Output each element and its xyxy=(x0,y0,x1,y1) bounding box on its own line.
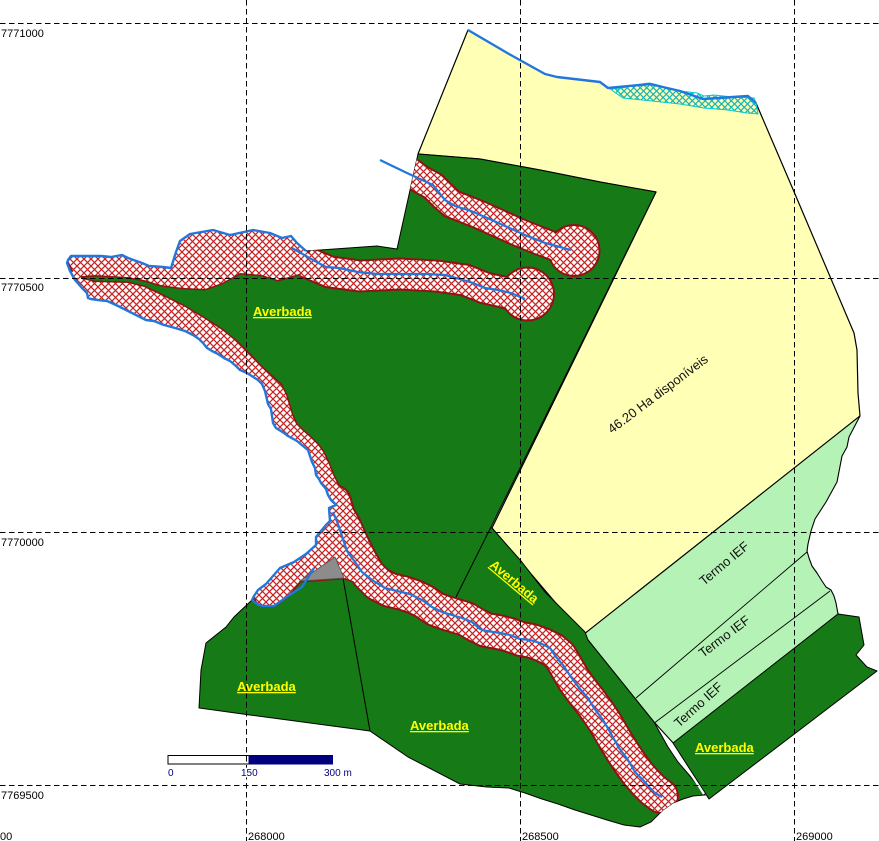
svg-text:00: 00 xyxy=(0,831,12,841)
svg-text:Averbada: Averbada xyxy=(253,304,313,319)
svg-text:269000: 269000 xyxy=(796,831,833,841)
svg-text:7769500: 7769500 xyxy=(1,790,44,802)
svg-text:Averbada: Averbada xyxy=(695,740,755,755)
svg-text:150: 150 xyxy=(241,768,258,779)
svg-text:0: 0 xyxy=(168,768,174,779)
svg-text:Averbada: Averbada xyxy=(410,718,470,733)
svg-text:7770500: 7770500 xyxy=(1,282,44,294)
svg-text:300 m: 300 m xyxy=(324,768,352,779)
svg-text:Averbada: Averbada xyxy=(237,679,297,694)
svg-text:268500: 268500 xyxy=(522,831,559,841)
svg-text:7771000: 7771000 xyxy=(1,28,44,40)
svg-text:7770000: 7770000 xyxy=(1,537,44,549)
svg-text:268000: 268000 xyxy=(248,831,285,841)
